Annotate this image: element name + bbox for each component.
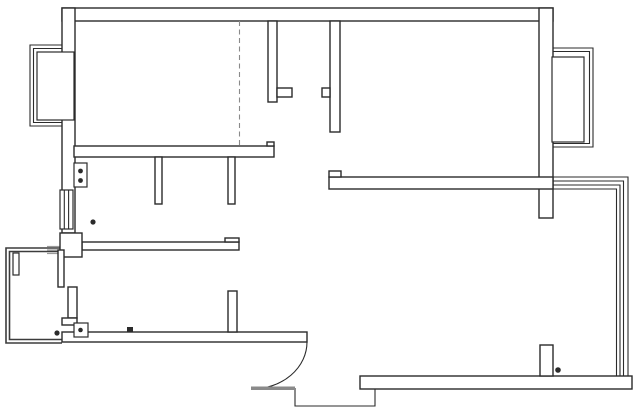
balcony-edge-bar [58, 250, 64, 287]
floor-drain-square [127, 327, 133, 333]
living-stub [228, 291, 237, 332]
balcony-corner-dot [54, 330, 59, 335]
floorplan-page [0, 0, 640, 414]
living-bottom-wall [62, 332, 307, 342]
kitchen-bottom-wall [82, 242, 239, 250]
sunroom-glazing-line-3 [553, 185, 620, 376]
entry-door-threshold [251, 387, 295, 391]
bedroom1-bottom-wall-tab [267, 142, 274, 146]
sunroom-glazing-line-4 [553, 189, 617, 376]
stove-burner-dot-top [78, 169, 83, 174]
entry-wall-dot [555, 367, 561, 373]
floorplan-svg [0, 0, 640, 414]
bedroom2-left-wall [330, 21, 340, 132]
kitchen-stub-left [155, 157, 162, 204]
kitchen-stub-right [228, 157, 235, 204]
kitchen-window [60, 190, 73, 229]
stove-burner-dot-bottom [78, 178, 83, 183]
entry-stub [540, 345, 553, 376]
bedroom1-right-wall-foot [277, 88, 292, 97]
bedroom2-bottom-wall-tab [329, 171, 341, 177]
left-bay-window-pane [37, 52, 74, 120]
stove-symbol-box [74, 163, 87, 187]
kitchen-bottom-wall-tab [225, 238, 239, 242]
sunroom-glazing-line-2 [553, 181, 624, 376]
bedroom1-bottom-wall [74, 146, 274, 157]
bedroom2-bottom-wall [329, 177, 553, 189]
floorplan-drawing [0, 0, 640, 414]
balcony-pillar [13, 253, 19, 275]
kitchen-floor-dot [90, 219, 95, 224]
top-wall [62, 8, 553, 21]
hall-stub [68, 287, 77, 318]
bedroom2-left-wall-notch [322, 88, 330, 97]
entry-door-arc [252, 342, 307, 389]
bedroom1-right-wall [268, 21, 277, 102]
right-bay-window-pane [552, 57, 584, 142]
entry-porch-step [295, 388, 375, 406]
outlet-dot [78, 328, 83, 333]
entry-bottom-wall [360, 376, 632, 389]
